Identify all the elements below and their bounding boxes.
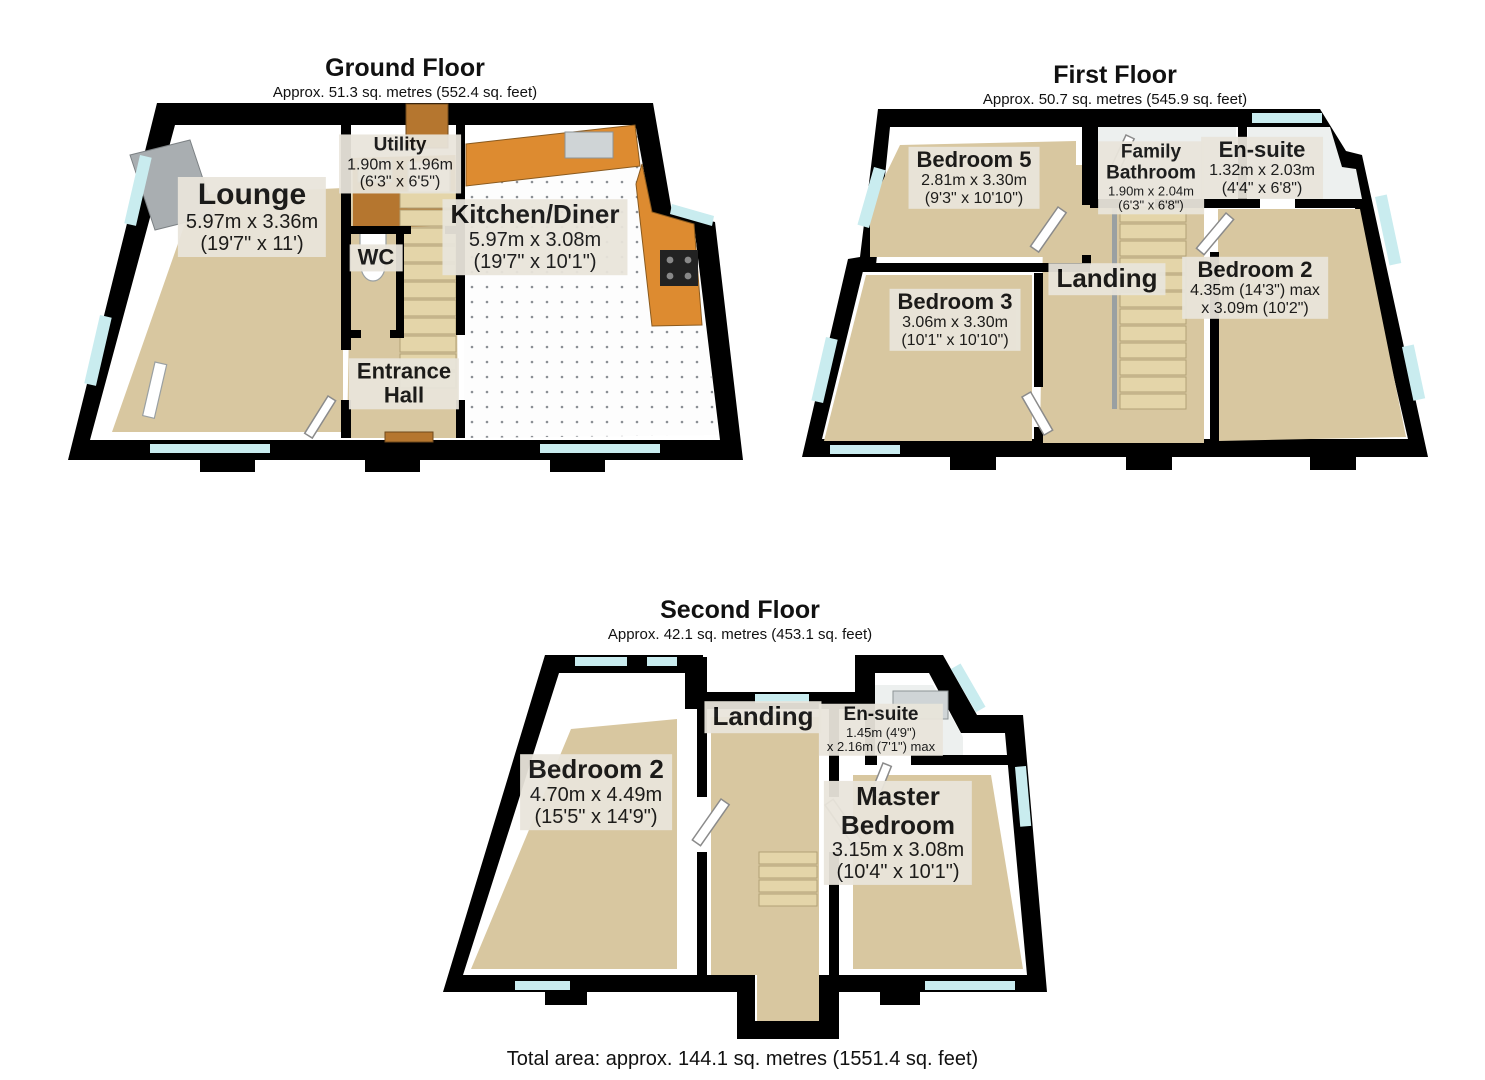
- room-name: WC: [358, 245, 395, 269]
- kitchen-sink: [565, 132, 613, 158]
- room-name: Landing: [712, 702, 813, 731]
- ground-floor-drawing: Lounge 5.97m x 3.36m (19'7" x 11') Utili…: [60, 100, 750, 475]
- room-label-ensuite: En-suite 1.32m x 2.03m (4'4" x 6'8"): [1201, 137, 1323, 199]
- room-dims-metric: 1.90m x 1.96m: [347, 156, 453, 174]
- second-floor-area: Approx. 42.1 sq. metres (453.1 sq. feet): [425, 626, 1055, 643]
- room-label-family-bathroom: Family Bathroom 1.90m x 2.04m (6'3" x 6'…: [1098, 141, 1204, 214]
- room-name: Bedroom 5: [917, 148, 1032, 172]
- kitchen-floor: [464, 125, 718, 438]
- first-floor-title: First Floor: [790, 62, 1440, 88]
- room-label-bedroom5: Bedroom 5 2.81m x 3.30m (9'3" x 10'10"): [909, 147, 1040, 209]
- room-dims-imperial: x 2.16m (7'1") max: [827, 740, 935, 754]
- room-dims-metric: 5.97m x 3.36m: [186, 211, 318, 233]
- room-dims-imperial: (10'4" x 10'1"): [832, 861, 964, 883]
- first-floor-drawing: Bedroom 5 2.81m x 3.30m (9'3" x 10'10") …: [790, 107, 1440, 472]
- room-dims-metric: 1.32m x 2.03m: [1209, 162, 1315, 180]
- room-label-landing: Landing: [704, 701, 821, 733]
- stove: [660, 250, 698, 286]
- room-name-line1: Entrance: [357, 359, 451, 383]
- second-floor-drawing: Bedroom 2 4.70m x 4.49m (15'5" x 14'9") …: [425, 647, 1055, 1042]
- room-dims-imperial: (19'7" x 10'1"): [450, 251, 619, 273]
- room-dims-imperial: (9'3" x 10'10"): [917, 190, 1032, 208]
- room-label-bedroom2: Bedroom 2 4.70m x 4.49m (15'5" x 14'9"): [520, 754, 672, 830]
- room-name: Utility: [347, 135, 453, 156]
- room-dims-imperial: (19'7" x 11'): [186, 233, 318, 255]
- room-dims-metric: 2.81m x 3.30m: [917, 172, 1032, 190]
- ground-floor-area: Approx. 51.3 sq. metres (552.4 sq. feet): [60, 84, 750, 101]
- room-label-kitchen-diner: Kitchen/Diner 5.97m x 3.08m (19'7" x 10'…: [442, 199, 627, 275]
- room-dims-imperial: (6'3" x 6'8"): [1106, 198, 1196, 212]
- room-dims-metric: 4.35m (14'3") max: [1190, 282, 1320, 300]
- room-label-master-bedroom: Master Bedroom 3.15m x 3.08m (10'4" x 10…: [824, 781, 972, 885]
- room-name: En-suite: [827, 705, 935, 726]
- second-floor-title: Second Floor: [425, 597, 1055, 623]
- room-name-line2: Hall: [357, 384, 451, 408]
- room-name: Lounge: [186, 178, 318, 211]
- ground-floor-title: Ground Floor: [60, 55, 750, 81]
- room-name: Landing: [1056, 264, 1157, 293]
- room-dims-imperial: (4'4" x 6'8"): [1209, 180, 1315, 198]
- room-label-entrance-hall: Entrance Hall: [349, 358, 459, 409]
- room-dims-metric: 4.70m x 4.49m: [528, 784, 664, 806]
- room-name-line1: Master: [832, 782, 964, 811]
- room-name: En-suite: [1209, 138, 1315, 162]
- room-name: Bedroom 3: [898, 290, 1013, 314]
- first-floor-area: Approx. 50.7 sq. metres (545.9 sq. feet): [790, 91, 1440, 108]
- room-dims-metric: 5.97m x 3.08m: [450, 229, 619, 251]
- room-name-line2: Bedroom: [832, 811, 964, 840]
- room-label-bedroom3: Bedroom 3 3.06m x 3.30m (10'1" x 10'10"): [890, 289, 1021, 351]
- second-floor-plan: Second Floor Approx. 42.1 sq. metres (45…: [425, 597, 1055, 1047]
- room-label-lounge: Lounge 5.97m x 3.36m (19'7" x 11'): [178, 177, 326, 257]
- room-label-utility: Utility 1.90m x 1.96m (6'3" x 6'5"): [339, 134, 461, 193]
- room-label-ensuite: En-suite 1.45m (4'9") x 2.16m (7'1") max: [819, 704, 943, 756]
- ground-floor-plan: Ground Floor Approx. 51.3 sq. metres (55…: [60, 55, 750, 480]
- room-dims-metric: 3.06m x 3.30m: [898, 314, 1013, 332]
- room-name: Bedroom 2: [528, 755, 664, 784]
- room-dims-imperial: x 3.09m (10'2"): [1190, 300, 1320, 318]
- room-name-line1: Family: [1106, 142, 1196, 163]
- total-area-text: Total area: approx. 144.1 sq. metres (15…: [0, 1048, 1485, 1071]
- front-door: [385, 432, 433, 442]
- room-dims-metric: 1.90m x 2.04m: [1106, 184, 1196, 198]
- room-dims-imperial: (6'3" x 6'5"): [347, 174, 453, 192]
- room-dims-imperial: (15'5" x 14'9"): [528, 806, 664, 828]
- room-name-line2: Bathroom: [1106, 163, 1196, 184]
- first-floor-plan: First Floor Approx. 50.7 sq. metres (545…: [790, 62, 1440, 477]
- room-label-landing: Landing: [1048, 263, 1165, 295]
- room-label-wc: WC: [350, 244, 403, 271]
- room-label-bedroom2: Bedroom 2 4.35m (14'3") max x 3.09m (10'…: [1182, 257, 1328, 319]
- room-dims-imperial: (10'1" x 10'10"): [898, 332, 1013, 350]
- room-dims-metric: 1.45m (4'9"): [827, 726, 935, 740]
- room-dims-metric: 3.15m x 3.08m: [832, 839, 964, 861]
- banister: [1112, 207, 1117, 409]
- room-name: Bedroom 2: [1190, 258, 1320, 282]
- room-name: Kitchen/Diner: [450, 200, 619, 229]
